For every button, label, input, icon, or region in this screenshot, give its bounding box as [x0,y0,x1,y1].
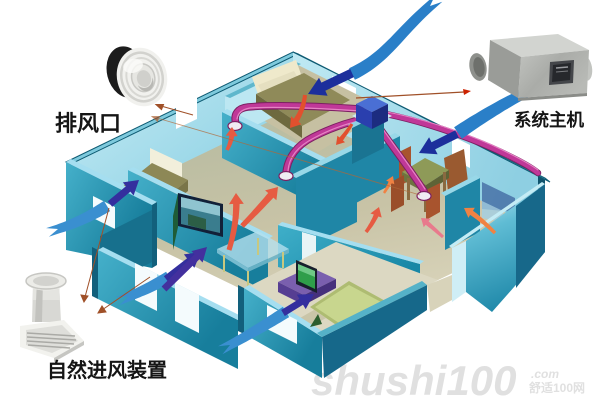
svg-text:自然进风装置: 自然进风装置 [47,358,167,382]
svg-text:舒适100网: 舒适100网 [528,380,585,395]
svg-text:排风口: 排风口 [55,111,121,136]
svg-text:.com: .com [531,367,559,381]
svg-text:系统主机: 系统主机 [514,110,584,130]
